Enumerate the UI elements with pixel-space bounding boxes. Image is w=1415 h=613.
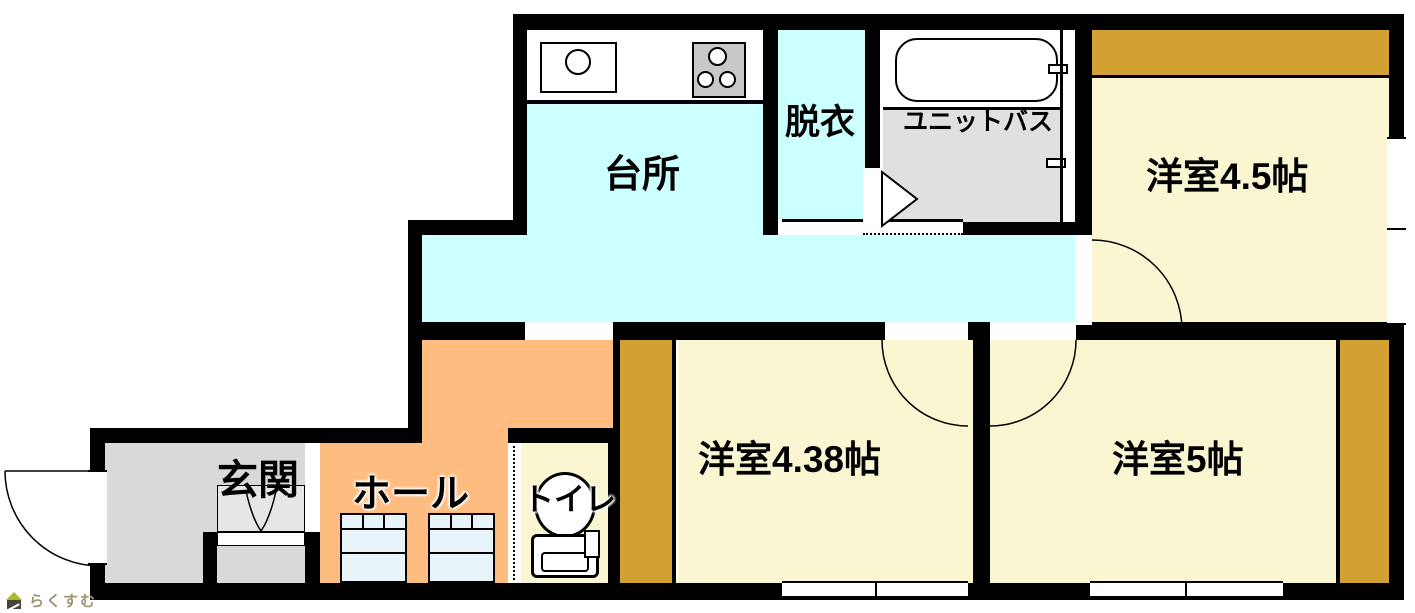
door-gap-room5 (990, 322, 1076, 340)
house-icon (6, 592, 23, 609)
bath-opening-dotted-line (863, 233, 963, 235)
door-gap-bath (863, 168, 882, 228)
western-room-438-label: 洋室4.38帖 (698, 441, 881, 480)
closet-room438 (620, 332, 672, 583)
window-room5 (1090, 581, 1283, 598)
opening-corridor-hall (525, 322, 613, 340)
corridor-floor-left (422, 235, 527, 322)
wall-toilet-top (508, 428, 620, 443)
kitchen-label: 台所 (604, 156, 680, 196)
front-door-swing (5, 471, 100, 566)
wall-middle (408, 322, 525, 340)
wall-middle (1076, 322, 1404, 340)
window-room45 (1387, 137, 1406, 325)
wall-entrance-top (90, 428, 422, 443)
wall-dressing-bath (865, 14, 880, 170)
door-gap-room438 (885, 322, 968, 340)
closet5-edge (1336, 332, 1340, 583)
bath-faucet-icon (1048, 64, 1068, 74)
front-door-gap (88, 470, 107, 565)
window-mullion (1387, 228, 1406, 230)
toilet-label: トイレ (523, 484, 616, 517)
floor-plan: 台所 脱衣 ユニットバス 洋室4.5帖 洋室4.38帖 洋室5帖 玄関 ホール … (0, 0, 1415, 613)
door-gap-room45 (1075, 237, 1092, 325)
window-mullion (1185, 583, 1187, 596)
dressing-room-label: 脱衣 (785, 105, 855, 142)
closet45-edge (1092, 75, 1389, 78)
corridor-floor-right (763, 235, 1076, 322)
entrance-step-icon (217, 532, 305, 546)
kitchen-floor (527, 103, 763, 322)
unit-bath-label: ユニットバス (903, 109, 1053, 135)
toilet-lever-icon (584, 530, 600, 558)
bath-inner-line (1060, 30, 1063, 222)
kitchen-counter-edge (527, 100, 763, 104)
stove-burner-icon (719, 71, 736, 88)
stove-burner-icon (697, 71, 714, 88)
entrance-post (203, 532, 217, 583)
wall-closet438-left (613, 322, 620, 583)
hall-label: ホール (352, 475, 469, 516)
toilet-seat-icon (541, 552, 589, 572)
western-room-5-label: 洋室5帖 (1112, 441, 1244, 480)
opening-entrance-hall (305, 443, 320, 532)
entrance-post (305, 532, 320, 583)
wall-corner (1075, 325, 1092, 340)
entrance-label: 玄関 (217, 459, 299, 502)
wall-middle (613, 322, 885, 340)
logo-text: らくすむ (29, 590, 97, 611)
wall-kitchen-left (513, 14, 527, 222)
western-room-45-label: 洋室4.5帖 (1146, 158, 1308, 197)
hall-opening-dotted-line (417, 334, 518, 336)
storage-cabinet-icon (428, 513, 495, 583)
wall-middle-post (968, 322, 990, 340)
toilet-door-dotted-line (513, 446, 515, 580)
window-mullion (875, 583, 877, 596)
window-room438 (782, 581, 968, 598)
closet438-edge (672, 340, 676, 583)
western-room-45-floor (1092, 78, 1389, 322)
bath-faucet-icon (1046, 158, 1066, 168)
wall-bath-bottom (963, 222, 1092, 235)
site-logo: らくすむ (6, 590, 97, 611)
stove-burner-icon (708, 47, 727, 66)
storage-cabinet-icon (340, 513, 407, 583)
bathtub-icon (895, 38, 1058, 102)
sink-drain-icon (565, 49, 591, 75)
wall-bath-right (1075, 14, 1092, 235)
wall-top (513, 14, 1404, 30)
closet-room5 (1340, 332, 1389, 583)
wall-kitchen-dressing (763, 14, 778, 235)
wall-corridor-top (408, 220, 527, 235)
wall-rooms-divider (973, 340, 990, 583)
